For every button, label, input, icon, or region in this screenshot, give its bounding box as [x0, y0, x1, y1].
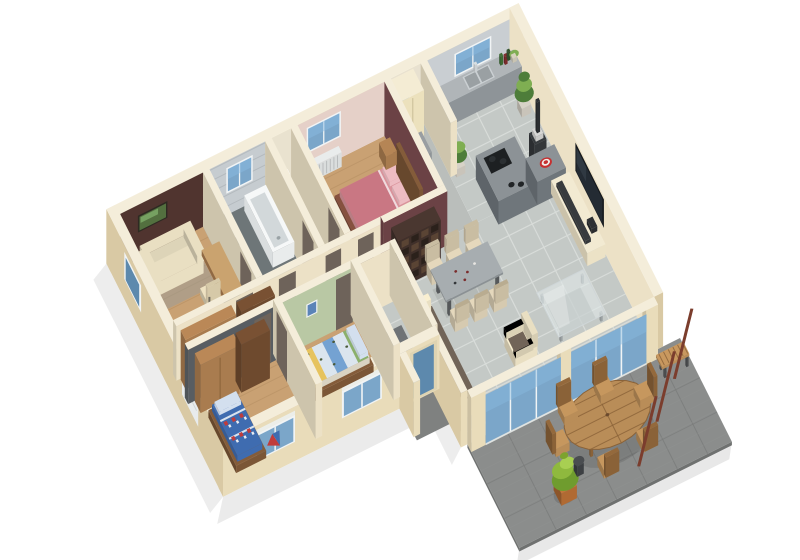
floorplan-svg: [0, 0, 800, 560]
floorplan-render: [0, 0, 800, 560]
